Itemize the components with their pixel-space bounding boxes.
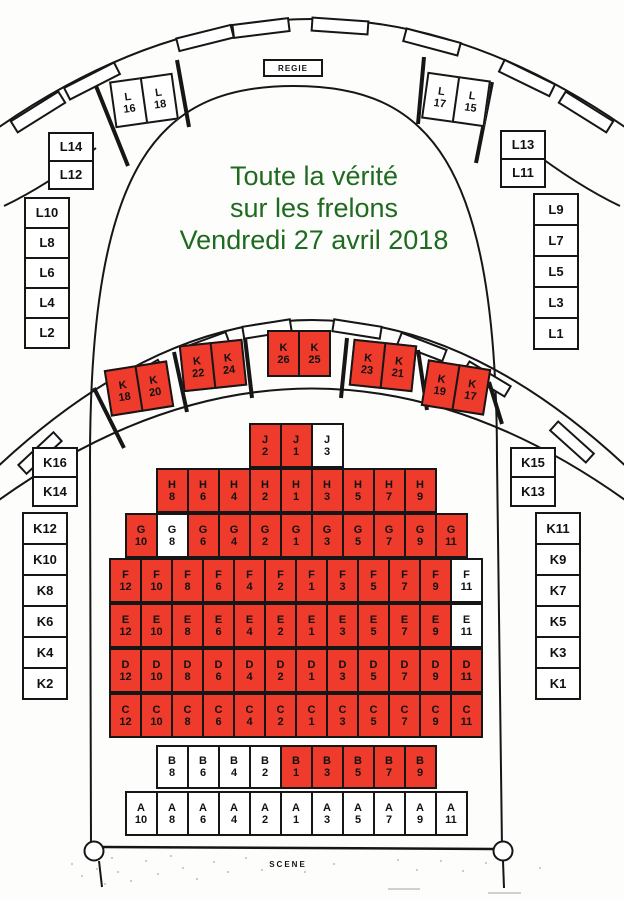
seat-C12[interactable]: C12 xyxy=(109,693,142,738)
seat-D2[interactable]: D2 xyxy=(264,648,297,693)
seat-F2[interactable]: F2 xyxy=(264,558,297,603)
seat-C6[interactable]: C6 xyxy=(202,693,235,738)
seat-D7[interactable]: D7 xyxy=(388,648,421,693)
seating-chart-page: REGIE Toute la vérité sur les frelons Ve… xyxy=(0,0,624,900)
seat-C10[interactable]: C10 xyxy=(140,693,173,738)
seat-K6[interactable]: K6 xyxy=(22,605,68,638)
seat-G9[interactable]: G9 xyxy=(404,513,437,558)
seat-L2[interactable]: L2 xyxy=(24,317,70,349)
seat-number: 7 xyxy=(401,626,407,638)
seat-number: 4 xyxy=(246,671,252,683)
seat-B7[interactable]: B7 xyxy=(373,745,406,789)
seat-G7[interactable]: G7 xyxy=(373,513,406,558)
seat-A11[interactable]: A11 xyxy=(435,791,468,836)
seat-F4[interactable]: F4 xyxy=(233,558,266,603)
seat-number: 10 xyxy=(150,626,162,638)
seat-number: 2 xyxy=(277,626,283,638)
seat-number: 26 xyxy=(277,354,289,366)
seat-row-letter: C xyxy=(184,704,192,716)
seat-row-letter: H xyxy=(199,479,207,491)
seat-number: 12 xyxy=(119,581,131,593)
seat-L9[interactable]: L9 xyxy=(533,193,579,226)
seat-row-letter: E xyxy=(153,614,160,626)
seat-number: 9 xyxy=(417,536,423,548)
seat-C1[interactable]: C1 xyxy=(295,693,328,738)
seat-H8[interactable]: H8 xyxy=(156,468,189,513)
balcony-seat-pair: K22K24 xyxy=(179,339,248,392)
seat-number: 4 xyxy=(231,491,237,503)
seat-A10[interactable]: A10 xyxy=(125,791,158,836)
seat-row-letter: F xyxy=(153,569,160,581)
seat-F9[interactable]: F9 xyxy=(419,558,452,603)
event-date-line: Vendredi 27 avril 2018 xyxy=(94,224,534,256)
seat-K1[interactable]: K1 xyxy=(535,667,581,700)
seat-number: 6 xyxy=(215,671,221,683)
seat-row-letter: E xyxy=(277,614,284,626)
seat-number: 10 xyxy=(150,581,162,593)
seat-B4[interactable]: B4 xyxy=(218,745,251,789)
seat-number: 5 xyxy=(370,671,376,683)
seat-D4[interactable]: D4 xyxy=(233,648,266,693)
seat-E10[interactable]: E10 xyxy=(140,603,173,648)
seat-A6[interactable]: A6 xyxy=(187,791,220,836)
seat-H9[interactable]: H9 xyxy=(404,468,437,513)
seat-row-letter: L xyxy=(468,89,476,102)
seat-A4[interactable]: A4 xyxy=(218,791,251,836)
seat-number: 1 xyxy=(293,446,299,458)
seat-J1[interactable]: J1 xyxy=(280,423,313,468)
seat-row-letter: C xyxy=(153,704,161,716)
seat-number: 3 xyxy=(324,446,330,458)
seat-row-letter: C xyxy=(215,704,223,716)
seat-row-letter: G xyxy=(354,524,363,536)
seat-row-letter: A xyxy=(261,802,269,814)
seat-row-letter: A xyxy=(385,802,393,814)
seat-number: 4 xyxy=(231,536,237,548)
seat-G1[interactable]: G1 xyxy=(280,513,313,558)
seat-number: 7 xyxy=(386,814,392,826)
seat-H3[interactable]: H3 xyxy=(311,468,344,513)
seat-K13[interactable]: K13 xyxy=(510,476,556,507)
floor-row-B: B8B6B4B2B1B3B5B7B9 xyxy=(156,745,435,789)
lower_balcony-left_stack: K16K14 xyxy=(32,447,78,505)
seat-C3[interactable]: C3 xyxy=(326,693,359,738)
seat-number: 10 xyxy=(150,716,162,728)
seat-row-letter: C xyxy=(401,704,409,716)
seat-row-letter: H xyxy=(261,479,269,491)
seat-E11[interactable]: E11 xyxy=(450,603,483,648)
seat-row-letter: D xyxy=(277,659,285,671)
seat-number: 3 xyxy=(324,767,330,779)
seat-F1[interactable]: F1 xyxy=(295,558,328,603)
seat-C9[interactable]: C9 xyxy=(419,693,452,738)
seat-row-letter: G xyxy=(261,524,270,536)
seat-row-letter: J xyxy=(293,434,299,446)
seat-number: 24 xyxy=(222,363,235,376)
seat-number: 22 xyxy=(191,366,204,379)
seat-K3[interactable]: K3 xyxy=(535,636,581,669)
seat-row-letter: C xyxy=(277,704,285,716)
seat-row-letter: E xyxy=(215,614,222,626)
seat-C2[interactable]: C2 xyxy=(264,693,297,738)
seat-row-letter: B xyxy=(354,755,362,767)
seat-row-letter: C xyxy=(122,704,130,716)
seat-number: 12 xyxy=(119,716,131,728)
seat-number: 18 xyxy=(118,390,132,404)
seat-K10[interactable]: K10 xyxy=(22,543,68,576)
seat-L4[interactable]: L4 xyxy=(24,287,70,319)
seat-row-letter: G xyxy=(230,524,239,536)
seat-number: 2 xyxy=(277,581,283,593)
seat-K12[interactable]: K12 xyxy=(22,512,68,545)
seat-row-letter: B xyxy=(323,755,331,767)
seat-number: 21 xyxy=(391,366,404,379)
seat-K4[interactable]: K4 xyxy=(22,636,68,669)
seat-row-letter: D xyxy=(339,659,347,671)
seat-E6[interactable]: E6 xyxy=(202,603,235,648)
seat-K14[interactable]: K14 xyxy=(32,476,78,507)
seat-number: 1 xyxy=(308,581,314,593)
seat-number: 2 xyxy=(262,536,268,548)
seat-H5[interactable]: H5 xyxy=(342,468,375,513)
seat-number: 6 xyxy=(215,626,221,638)
seat-row-letter: G xyxy=(168,524,177,536)
seat-row-letter: G xyxy=(137,524,146,536)
seat-L3[interactable]: L3 xyxy=(533,286,579,319)
seat-number: 5 xyxy=(355,814,361,826)
seat-row-letter: C xyxy=(463,704,471,716)
floor-row-H: H8H6H4H2H1H3H5H7H9 xyxy=(156,468,435,513)
seat-H1[interactable]: H1 xyxy=(280,468,313,513)
seat-F11[interactable]: F11 xyxy=(450,558,483,603)
seat-row-letter: G xyxy=(416,524,425,536)
seat-K20[interactable]: K20 xyxy=(134,360,174,412)
seat-B9[interactable]: B9 xyxy=(404,745,437,789)
seat-number: 11 xyxy=(461,581,473,593)
seat-E4[interactable]: E4 xyxy=(233,603,266,648)
seat-L8[interactable]: L8 xyxy=(24,227,70,259)
seat-L15[interactable]: L15 xyxy=(452,76,491,127)
upper_balcony-left_column: L10L8L6L4L2 xyxy=(24,197,70,347)
seat-G8[interactable]: G8 xyxy=(156,513,189,558)
seat-row-letter: A xyxy=(168,802,176,814)
seat-row-letter: A xyxy=(416,802,424,814)
seat-number: 23 xyxy=(360,363,373,376)
balcony-seat-pair: K26K25 xyxy=(267,330,331,377)
seat-K26[interactable]: K26 xyxy=(267,330,300,377)
seat-number: 7 xyxy=(401,671,407,683)
seat-K16[interactable]: K16 xyxy=(32,447,78,478)
seat-A8[interactable]: A8 xyxy=(156,791,189,836)
seat-row-letter: D xyxy=(308,659,316,671)
seat-H4[interactable]: H4 xyxy=(218,468,251,513)
seat-L18[interactable]: L18 xyxy=(140,73,179,124)
seat-row-letter: H xyxy=(292,479,300,491)
seat-number: 18 xyxy=(153,97,167,111)
seat-number: 7 xyxy=(401,716,407,728)
seat-row-letter: H xyxy=(230,479,238,491)
seat-row-letter: A xyxy=(323,802,331,814)
seat-F5[interactable]: F5 xyxy=(357,558,390,603)
seat-D10[interactable]: D10 xyxy=(140,648,173,693)
seat-E8[interactable]: E8 xyxy=(171,603,204,648)
balcony-seat-pair: L17L15 xyxy=(421,72,491,127)
seat-number: 2 xyxy=(262,767,268,779)
seat-row-letter: G xyxy=(447,524,456,536)
seat-row-letter: D xyxy=(401,659,409,671)
seat-number: 3 xyxy=(339,671,345,683)
seat-F3[interactable]: F3 xyxy=(326,558,359,603)
seat-A5[interactable]: A5 xyxy=(342,791,375,836)
seat-row-letter: E xyxy=(246,614,253,626)
seat-row-letter: F xyxy=(246,569,253,581)
seat-number: 6 xyxy=(200,767,206,779)
upper_balcony-right_column: L9L7L5L3L1 xyxy=(533,193,579,348)
seat-number: 9 xyxy=(417,767,423,779)
seat-C7[interactable]: C7 xyxy=(388,693,421,738)
seat-K15[interactable]: K15 xyxy=(510,447,556,478)
seat-number: 2 xyxy=(262,814,268,826)
seat-B3[interactable]: B3 xyxy=(311,745,344,789)
event-title-line-1: Toute la vérité xyxy=(94,160,534,192)
seat-A2[interactable]: A2 xyxy=(249,791,282,836)
seat-E2[interactable]: E2 xyxy=(264,603,297,648)
seat-row-letter: A xyxy=(354,802,362,814)
seat-number: 12 xyxy=(119,626,131,638)
seat-row-letter: G xyxy=(385,524,394,536)
upper_balcony-left_stack: L14L12 xyxy=(48,132,94,188)
seat-number: 6 xyxy=(200,814,206,826)
seat-L14[interactable]: L14 xyxy=(48,132,94,162)
seat-number: 8 xyxy=(184,581,190,593)
seat-number: 7 xyxy=(386,767,392,779)
seat-G2[interactable]: G2 xyxy=(249,513,282,558)
seat-D3[interactable]: D3 xyxy=(326,648,359,693)
seat-number: 3 xyxy=(339,716,345,728)
seat-row-letter: E xyxy=(401,614,408,626)
seat-B5[interactable]: B5 xyxy=(342,745,375,789)
seat-number: 5 xyxy=(355,491,361,503)
seat-B8[interactable]: B8 xyxy=(156,745,189,789)
seat-number: 8 xyxy=(169,491,175,503)
seat-row-letter: L xyxy=(124,90,132,103)
seat-G5[interactable]: G5 xyxy=(342,513,375,558)
seat-row-letter: G xyxy=(199,524,208,536)
seat-number: 11 xyxy=(461,716,473,728)
seat-number: 10 xyxy=(150,671,162,683)
seat-number: 12 xyxy=(119,671,131,683)
seat-number: 8 xyxy=(169,536,175,548)
seat-A1[interactable]: A1 xyxy=(280,791,313,836)
seat-row-letter: E xyxy=(432,614,439,626)
seat-number: 5 xyxy=(355,767,361,779)
regie-booth-label: REGIE xyxy=(278,64,308,73)
seat-E12[interactable]: E12 xyxy=(109,603,142,648)
seat-row-letter: G xyxy=(323,524,332,536)
seat-row-letter: C xyxy=(246,704,254,716)
seat-row-letter: G xyxy=(292,524,301,536)
seat-C11[interactable]: C11 xyxy=(450,693,483,738)
seat-number: 6 xyxy=(200,491,206,503)
seat-row-letter: F xyxy=(184,569,191,581)
seat-number: 3 xyxy=(324,814,330,826)
seat-row-letter: E xyxy=(308,614,315,626)
seat-L12[interactable]: L12 xyxy=(48,160,94,190)
seat-E9[interactable]: E9 xyxy=(419,603,452,648)
seat-number: 11 xyxy=(445,814,457,826)
seat-number: 8 xyxy=(184,626,190,638)
seat-row-letter: E xyxy=(339,614,346,626)
seat-D5[interactable]: D5 xyxy=(357,648,390,693)
floor-row-A: A10A8A6A4A2A1A3A5A7A9A11 xyxy=(125,791,466,836)
seat-row-letter: K xyxy=(223,352,232,365)
seat-A7[interactable]: A7 xyxy=(373,791,406,836)
seat-number: 7 xyxy=(401,581,407,593)
balcony-seat-pair: K18K20 xyxy=(104,360,175,416)
seat-number: 8 xyxy=(184,716,190,728)
seat-F7[interactable]: F7 xyxy=(388,558,421,603)
seat-row-letter: K xyxy=(192,355,201,368)
seat-C8[interactable]: C8 xyxy=(171,693,204,738)
lower_balcony-right_stack: K15K13 xyxy=(510,447,556,505)
seat-F10[interactable]: F10 xyxy=(140,558,173,603)
seat-K11[interactable]: K11 xyxy=(535,512,581,545)
seat-number: 5 xyxy=(370,581,376,593)
seat-L6[interactable]: L6 xyxy=(24,257,70,289)
stage-label: SCENE xyxy=(256,860,320,869)
seat-D6[interactable]: D6 xyxy=(202,648,235,693)
seat-number: 17 xyxy=(463,389,477,403)
seat-row-letter: D xyxy=(153,659,161,671)
seat-E7[interactable]: E7 xyxy=(388,603,421,648)
seat-L11[interactable]: L11 xyxy=(500,158,546,188)
seat-number: 4 xyxy=(246,626,252,638)
seat-row-letter: B xyxy=(416,755,424,767)
seat-L5[interactable]: L5 xyxy=(533,255,579,288)
seat-D11[interactable]: D11 xyxy=(450,648,483,693)
seat-number: 1 xyxy=(293,491,299,503)
seat-K8[interactable]: K8 xyxy=(22,574,68,607)
seat-row-letter: A xyxy=(292,802,300,814)
seat-E3[interactable]: E3 xyxy=(326,603,359,648)
seat-number: 17 xyxy=(433,96,447,110)
seat-row-letter: E xyxy=(370,614,377,626)
seat-K2[interactable]: K2 xyxy=(22,667,68,700)
balcony-seat-pair: K23K21 xyxy=(349,339,418,392)
seat-G3[interactable]: G3 xyxy=(311,513,344,558)
seat-number: 11 xyxy=(461,671,473,683)
seat-H7[interactable]: H7 xyxy=(373,468,406,513)
seat-row-letter: F xyxy=(122,569,129,581)
seat-D12[interactable]: D12 xyxy=(109,648,142,693)
seat-K25[interactable]: K25 xyxy=(298,330,331,377)
seat-number: 11 xyxy=(461,626,473,638)
seat-L10[interactable]: L10 xyxy=(24,197,70,229)
balcony-seat-pair: K19K17 xyxy=(421,359,492,415)
seat-B1[interactable]: B1 xyxy=(280,745,313,789)
seat-L7[interactable]: L7 xyxy=(533,224,579,257)
seat-row-letter: F xyxy=(432,569,439,581)
seat-number: 9 xyxy=(432,626,438,638)
seat-H2[interactable]: H2 xyxy=(249,468,282,513)
seat-F8[interactable]: F8 xyxy=(171,558,204,603)
seat-K21[interactable]: K21 xyxy=(380,342,418,392)
seat-row-letter: A xyxy=(199,802,207,814)
seat-number: 8 xyxy=(184,671,190,683)
seat-F6[interactable]: F6 xyxy=(202,558,235,603)
seat-B6[interactable]: B6 xyxy=(187,745,220,789)
seat-number: 10 xyxy=(135,814,147,826)
seat-B2[interactable]: B2 xyxy=(249,745,282,789)
floor-row-J: J2J1J3 xyxy=(249,423,342,468)
seat-J2[interactable]: J2 xyxy=(249,423,282,468)
floor-row-E: E12E10E8E6E4E2E1E3E5E7E9E11 xyxy=(109,603,481,648)
seat-K9[interactable]: K9 xyxy=(535,543,581,576)
seat-K5[interactable]: K5 xyxy=(535,605,581,638)
seat-number: 1 xyxy=(308,716,314,728)
seat-row-letter: D xyxy=(463,659,471,671)
seat-number: 9 xyxy=(432,671,438,683)
seat-G10[interactable]: G10 xyxy=(125,513,158,558)
seat-D1[interactable]: D1 xyxy=(295,648,328,693)
seat-E1[interactable]: E1 xyxy=(295,603,328,648)
seat-A9[interactable]: A9 xyxy=(404,791,437,836)
balcony-seat-pair: L16L18 xyxy=(109,73,179,128)
seat-number: 3 xyxy=(339,626,345,638)
seat-H6[interactable]: H6 xyxy=(187,468,220,513)
seat-row-letter: H xyxy=(168,479,176,491)
seat-G6[interactable]: G6 xyxy=(187,513,220,558)
seat-D9[interactable]: D9 xyxy=(419,648,452,693)
seat-C4[interactable]: C4 xyxy=(233,693,266,738)
seat-number: 6 xyxy=(215,716,221,728)
seat-number: 25 xyxy=(308,354,320,366)
seat-F12[interactable]: F12 xyxy=(109,558,142,603)
seat-K7[interactable]: K7 xyxy=(535,574,581,607)
seat-row-letter: E xyxy=(463,614,470,626)
seat-D8[interactable]: D8 xyxy=(171,648,204,693)
seat-row-letter: E xyxy=(184,614,191,626)
seat-row-letter: F xyxy=(370,569,377,581)
seat-G4[interactable]: G4 xyxy=(218,513,251,558)
seat-C5[interactable]: C5 xyxy=(357,693,390,738)
seat-row-letter: B xyxy=(230,755,238,767)
seat-row-letter: H xyxy=(385,479,393,491)
seat-number: 4 xyxy=(246,581,252,593)
seat-L1[interactable]: L1 xyxy=(533,317,579,350)
seat-row-letter: B xyxy=(292,755,300,767)
floor-row-C: C12C10C8C6C4C2C1C3C5C7C9C11 xyxy=(109,693,481,738)
seat-E5[interactable]: E5 xyxy=(357,603,390,648)
seat-row-letter: B xyxy=(199,755,207,767)
seat-K24[interactable]: K24 xyxy=(210,339,248,389)
seat-number: 1 xyxy=(308,671,314,683)
seat-L13[interactable]: L13 xyxy=(500,130,546,160)
seat-row-letter: F xyxy=(308,569,315,581)
seat-row-letter: D xyxy=(122,659,130,671)
seat-row-letter: D xyxy=(246,659,254,671)
seat-J3[interactable]: J3 xyxy=(311,423,344,468)
seat-A3[interactable]: A3 xyxy=(311,791,344,836)
seat-row-letter: D xyxy=(432,659,440,671)
floor-row-D: D12D10D8D6D4D2D1D3D5D7D9D11 xyxy=(109,648,481,693)
upper_balcony-right_stack: L13L11 xyxy=(500,130,546,186)
seat-G11[interactable]: G11 xyxy=(435,513,468,558)
seat-number: 9 xyxy=(432,581,438,593)
seat-number: 1 xyxy=(293,767,299,779)
seat-number: 1 xyxy=(308,626,314,638)
seat-number: 10 xyxy=(135,536,147,548)
